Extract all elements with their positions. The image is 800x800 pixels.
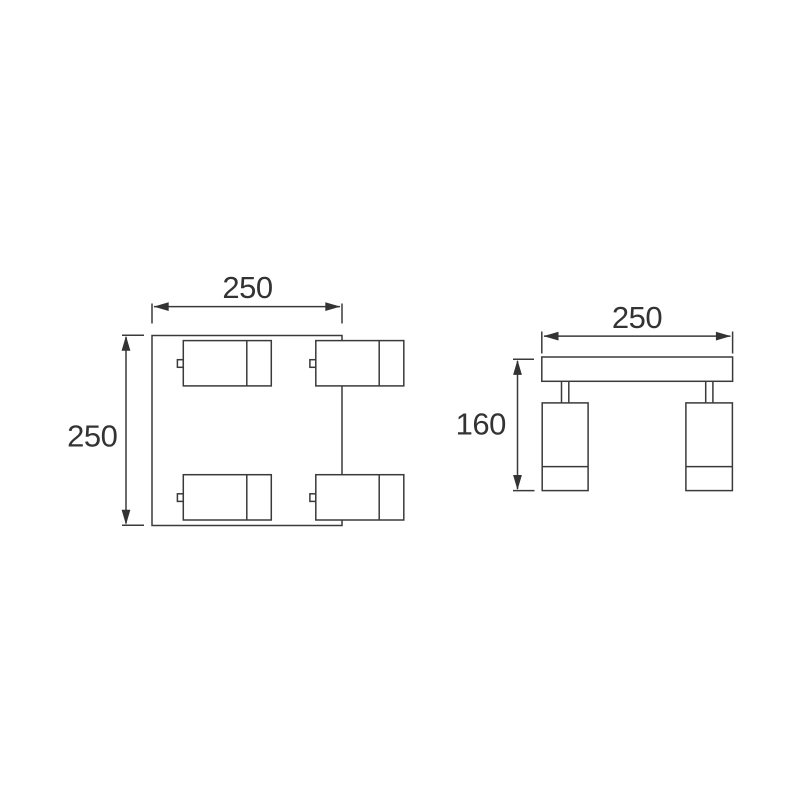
svg-text:250: 250 <box>67 418 117 453</box>
svg-text:160: 160 <box>456 406 506 441</box>
svg-text:250: 250 <box>222 270 272 305</box>
svg-text:250: 250 <box>612 300 662 335</box>
